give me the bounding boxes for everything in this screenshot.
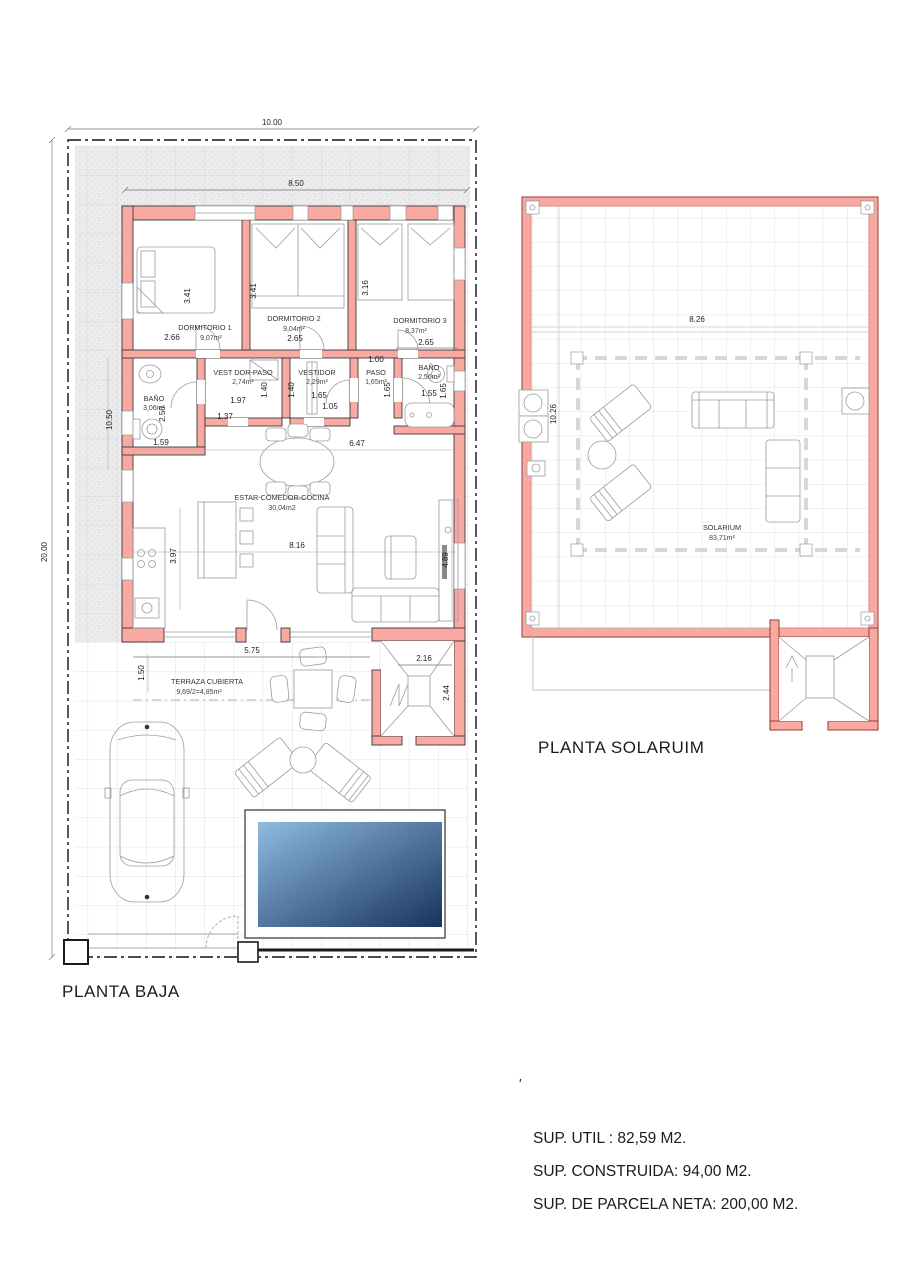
- vdp-d1: 1.97: [230, 396, 246, 405]
- dorm3-height: 3.16: [361, 280, 370, 296]
- banyo2-d2: 1.65: [439, 383, 448, 399]
- estar-name: ESTAR-COMEDOR-COCINA: [234, 493, 329, 502]
- paso-d2: 1.65: [383, 382, 392, 398]
- dorm2-area: 9,04m²: [283, 326, 305, 333]
- planta-baja-title: PLANTA BAJA: [62, 982, 180, 1002]
- terraza-name: TERRAZA CUBIERTA: [171, 677, 243, 686]
- banyo2-d1: 1.55: [421, 389, 437, 398]
- sheet: 10.00 20.00 8.50 10.50: [0, 0, 900, 1277]
- escalera-d2: 2.44: [442, 685, 451, 701]
- dorm3-name: DORMITORIO 3: [393, 316, 446, 325]
- dorm3-area: 8,37m²: [405, 328, 427, 335]
- terraza-area: 9,69/2=4,85m²: [176, 689, 222, 696]
- vdp-name: VEST DOR-PASO: [213, 368, 273, 377]
- vdp-d2: 1.37: [217, 412, 233, 421]
- banyo2-name: BAÑO: [419, 363, 440, 372]
- estar-d4: 4.89: [441, 552, 450, 568]
- solarium-dim-height: 10.26: [549, 403, 558, 424]
- estar-d3: 3.97: [169, 548, 178, 564]
- planta-solarium-plan: 8.26 10.26 SOLARIUM 83,71m²: [519, 197, 878, 730]
- dorm1-height: 3.41: [183, 288, 192, 304]
- terraza-d1: 5.75: [244, 646, 260, 655]
- dining-set: [260, 424, 334, 499]
- sup-util-line: SUP. UTIL : 82,59 M2.: [533, 1130, 798, 1148]
- escalera-d1: 2.16: [416, 654, 432, 663]
- dim-plot-height: 20.00: [40, 541, 49, 562]
- dorm1-name: DORMITORIO 1: [178, 323, 231, 332]
- dorm2-width: 2.65: [287, 334, 303, 343]
- paso-name: PASO: [366, 368, 386, 377]
- dim-house-width: 8.50: [288, 179, 304, 188]
- dim-interior-height: 10.50: [105, 409, 114, 430]
- vestidor-d1: 1.65: [311, 391, 327, 400]
- solarium-room-area: 83,71m²: [709, 535, 735, 542]
- solarium-room-name: SOLARIUM: [703, 523, 741, 532]
- banyo2-area: 2,56m²: [418, 374, 440, 381]
- vestidor-area: 2,29m²: [306, 379, 328, 386]
- dorm1-area: 9,07m²: [200, 335, 222, 342]
- planta-baja-plan: 10.00 20.00 8.50 10.50: [40, 118, 479, 964]
- vestidor-d3: 1.40: [287, 382, 296, 398]
- dim-plot-width: 10.00: [262, 118, 283, 127]
- solarium-dim-width: 8.26: [689, 315, 705, 324]
- terraza-d2: 1.50: [137, 665, 146, 681]
- pool: [245, 810, 445, 938]
- surface-summary: SUP. UTIL : 82,59 M2. SUP. CONSTRUIDA: 9…: [533, 1130, 798, 1214]
- dorm3-width: 2.65: [418, 338, 434, 347]
- estar-area: 30,04m2: [268, 505, 295, 512]
- planta-solarium-title: PLANTA SOLARUIM: [538, 738, 704, 758]
- banyo1-d2: 2.50: [158, 406, 167, 422]
- dorm2-height: 3.41: [249, 283, 258, 299]
- estar-d2: 8.16: [289, 541, 305, 550]
- dorm2-name: DORMITORIO 2: [267, 314, 320, 323]
- estar-d1: 6.47: [349, 439, 365, 448]
- sup-construida-line: SUP. CONSTRUIDA: 94,00 M2.: [533, 1163, 798, 1181]
- vestidor-name: VESTIDOR: [298, 368, 335, 377]
- banyo1-name: BAÑO: [144, 394, 165, 403]
- vdp-area: 2,74m²: [232, 379, 254, 386]
- banyo1-d1: 1.59: [153, 438, 169, 447]
- vdp-d3: 1.40: [260, 382, 269, 398]
- dorm1-width: 2.66: [164, 333, 180, 342]
- floor-plan-drawing: 10.00 20.00 8.50 10.50: [0, 0, 900, 1277]
- vestidor-d2: 1.05: [322, 402, 338, 411]
- sup-parcela-line: SUP. DE PARCELA NETA: 200,00 M2.: [533, 1196, 798, 1214]
- paso-d1: 1.00: [368, 355, 384, 364]
